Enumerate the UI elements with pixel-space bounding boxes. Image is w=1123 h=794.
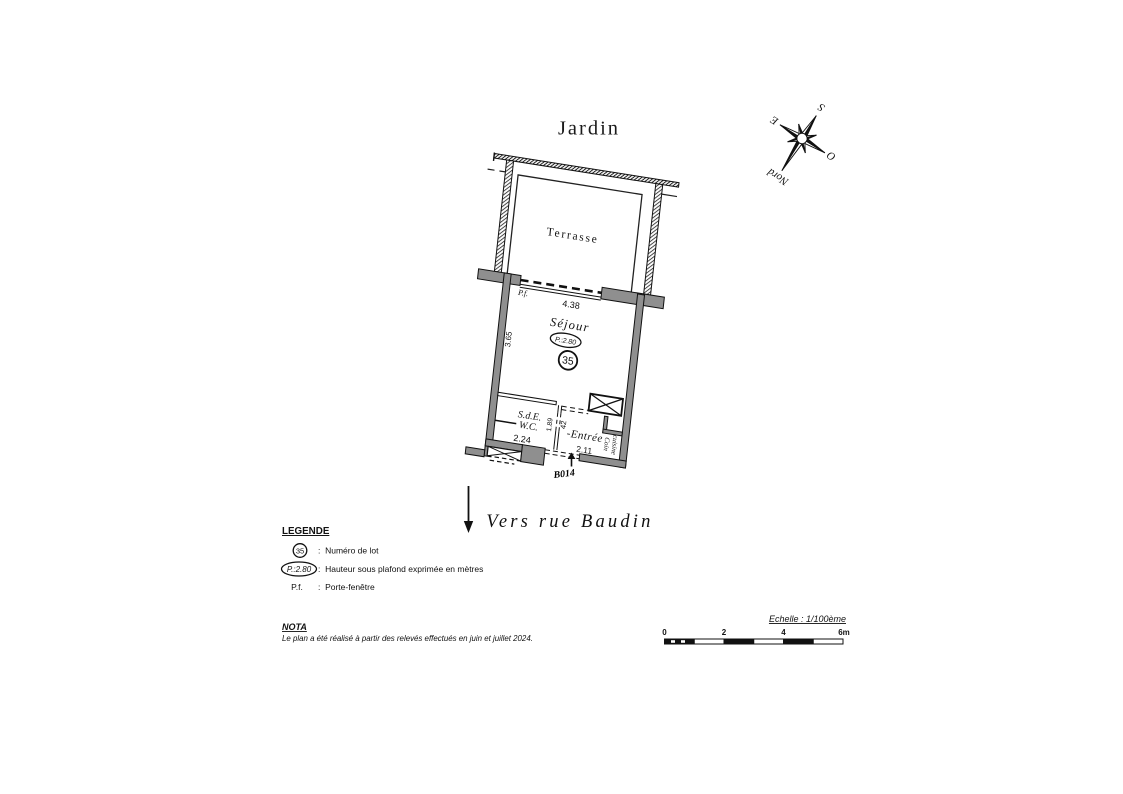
svg-text:B014: B014 (552, 467, 576, 481)
svg-text:-Entrée: -Entrée (566, 427, 603, 445)
svg-text:Séjour: Séjour (549, 315, 590, 335)
svg-text:3.65: 3.65 (503, 330, 514, 347)
svg-text:NOTA: NOTA (282, 622, 307, 632)
svg-text:Terrasse: Terrasse (546, 226, 599, 246)
svg-text:W.C.: W.C. (518, 420, 538, 434)
svg-text:2: 2 (722, 628, 727, 637)
svg-text:1.89: 1.89 (546, 417, 554, 432)
svg-text:P.f.: P.f. (291, 582, 303, 592)
svg-text:: Numéro de lot: : Numéro de lot (318, 546, 379, 556)
svg-text:P.f.: P.f. (517, 288, 529, 299)
svg-text:: Porte-fenêtre: : Porte-fenêtre (318, 582, 375, 592)
svg-text:6m: 6m (838, 628, 850, 637)
svg-text:P.:2.80: P.:2.80 (287, 565, 312, 574)
svg-text:Vers rue Baudin: Vers rue Baudin (486, 512, 653, 532)
svg-text:O: O (825, 148, 838, 162)
svg-text:35: 35 (561, 354, 574, 368)
svg-text:35: 35 (296, 547, 304, 556)
svg-text:Jardin: Jardin (558, 118, 620, 140)
svg-text:4.38: 4.38 (562, 298, 580, 311)
svg-text:Nord: Nord (765, 165, 791, 188)
svg-text:0: 0 (662, 628, 667, 637)
svg-text:: Hauteur sous plafond exprim: : Hauteur sous plafond exprimée en mètre… (318, 564, 483, 574)
svg-text:S: S (816, 100, 827, 113)
svg-text:Le plan a été réalisé à partir: Le plan a été réalisé à partir des relev… (282, 634, 533, 643)
svg-text:Echelle : 1/100ème: Echelle : 1/100ème (769, 614, 846, 624)
svg-text:Coin: Coin (602, 437, 611, 452)
svg-text:LEGENDE: LEGENDE (282, 526, 330, 537)
svg-text:E: E (768, 113, 781, 127)
svg-text:4: 4 (781, 628, 786, 637)
